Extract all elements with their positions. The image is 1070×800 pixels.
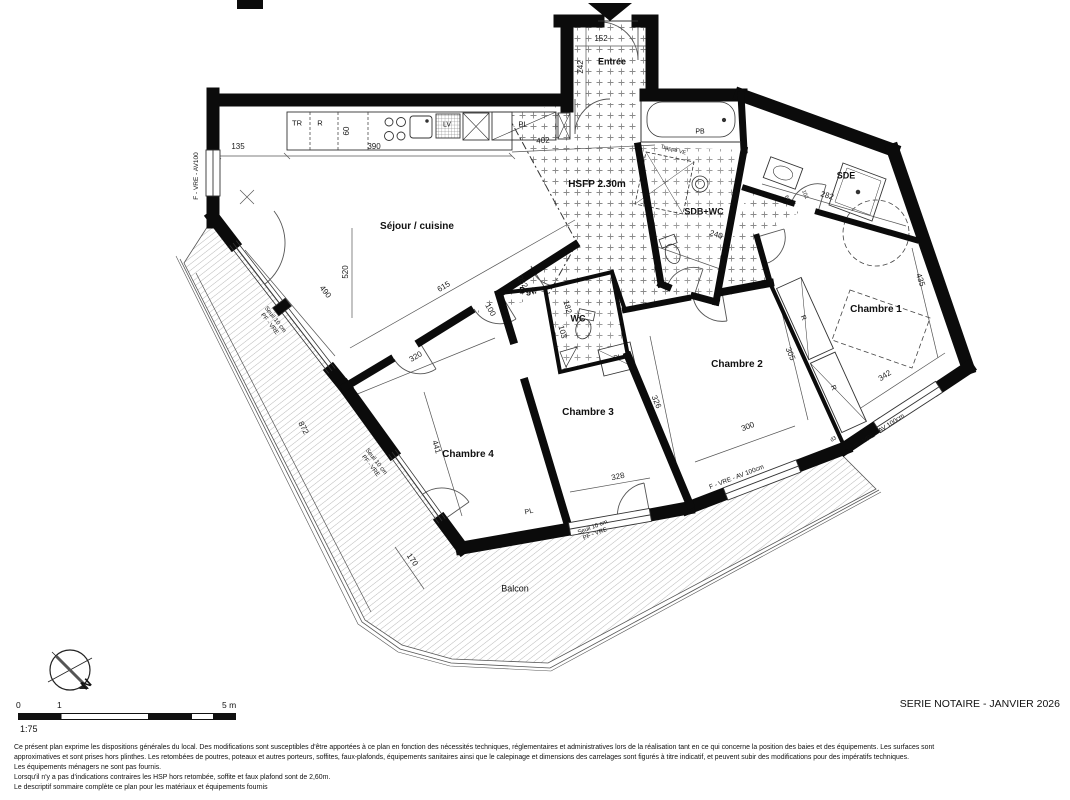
fixture-label-dishwasher: LV (443, 122, 451, 129)
dim-entree-depth: 242 (577, 60, 585, 73)
floorplan-drawing (0, 0, 1070, 800)
room-label-chambre3: Chambre 3 (562, 408, 614, 418)
room-label-wc: WC (571, 315, 586, 324)
room-label-sde: SDE (837, 172, 856, 181)
fixture-label-bath-panel: PB (695, 129, 704, 136)
footer-note-line: Le descriptif sommaire complète ce plan … (14, 783, 1064, 793)
room-label-chambre1: Chambre 1 (850, 305, 902, 315)
room-label-sdb: SDB+WC (684, 208, 723, 217)
compass-icon (38, 642, 108, 712)
closet-label-hall: PL (518, 120, 527, 128)
dim-kitchen-left: 135 (231, 143, 244, 151)
window-label-left: F - VRE - AV100 (194, 152, 201, 200)
adjacent-plan-mark (237, 0, 263, 9)
room-label-balcon: Balcon (501, 585, 529, 594)
footer-note-line: approximatives et sont prises hors plint… (14, 753, 1064, 763)
room-label-sejour: Séjour / cuisine (380, 222, 454, 232)
dim-counter-depth: 60 (343, 127, 351, 136)
compass-rose (38, 642, 108, 717)
footer-note-line: Les équipements ménagers ne sont pas fou… (14, 763, 1064, 773)
scale-ratio: 1:75 (20, 724, 38, 734)
room-label-chambre2: Chambre 2 (711, 360, 763, 370)
scale-bar-graphic (18, 713, 238, 721)
scale-tick-5: 5 m (222, 700, 236, 710)
dim-entree-width: 152 (594, 35, 607, 43)
drawing-title: SERIE NOTAIRE - JANVIER 2026 (740, 698, 1060, 710)
room-label-chambre4: Chambre 4 (442, 450, 494, 460)
footer-note-line: Lorsqu'il n'y a pas d'indications contra… (14, 773, 1064, 783)
floorplan-page: Entrée Séjour / cuisine SDB+WC SDE Chamb… (0, 0, 1070, 800)
scale-tick-1: 1 (57, 700, 62, 710)
footer-note-line: Ce présent plan exprime les dispositions… (14, 743, 1064, 753)
dim-sejour-left: 520 (342, 265, 350, 278)
bed-outline (832, 290, 930, 368)
ceiling-height-label: HSFP 2.30m (568, 180, 626, 190)
dim-kitchen-hall: 402 (536, 137, 550, 146)
fixture-label-fridge: R (317, 119, 322, 127)
fixture-label-tr: TR (292, 119, 302, 127)
vanity-basin (763, 157, 802, 189)
scale-tick-0: 0 (16, 700, 21, 710)
bathtub (641, 97, 741, 142)
dim-kitchen-counter: 390 (367, 143, 380, 151)
footer-notes: Ce présent plan exprime les dispositions… (14, 743, 1064, 793)
room-label-entree: Entrée (598, 58, 626, 67)
